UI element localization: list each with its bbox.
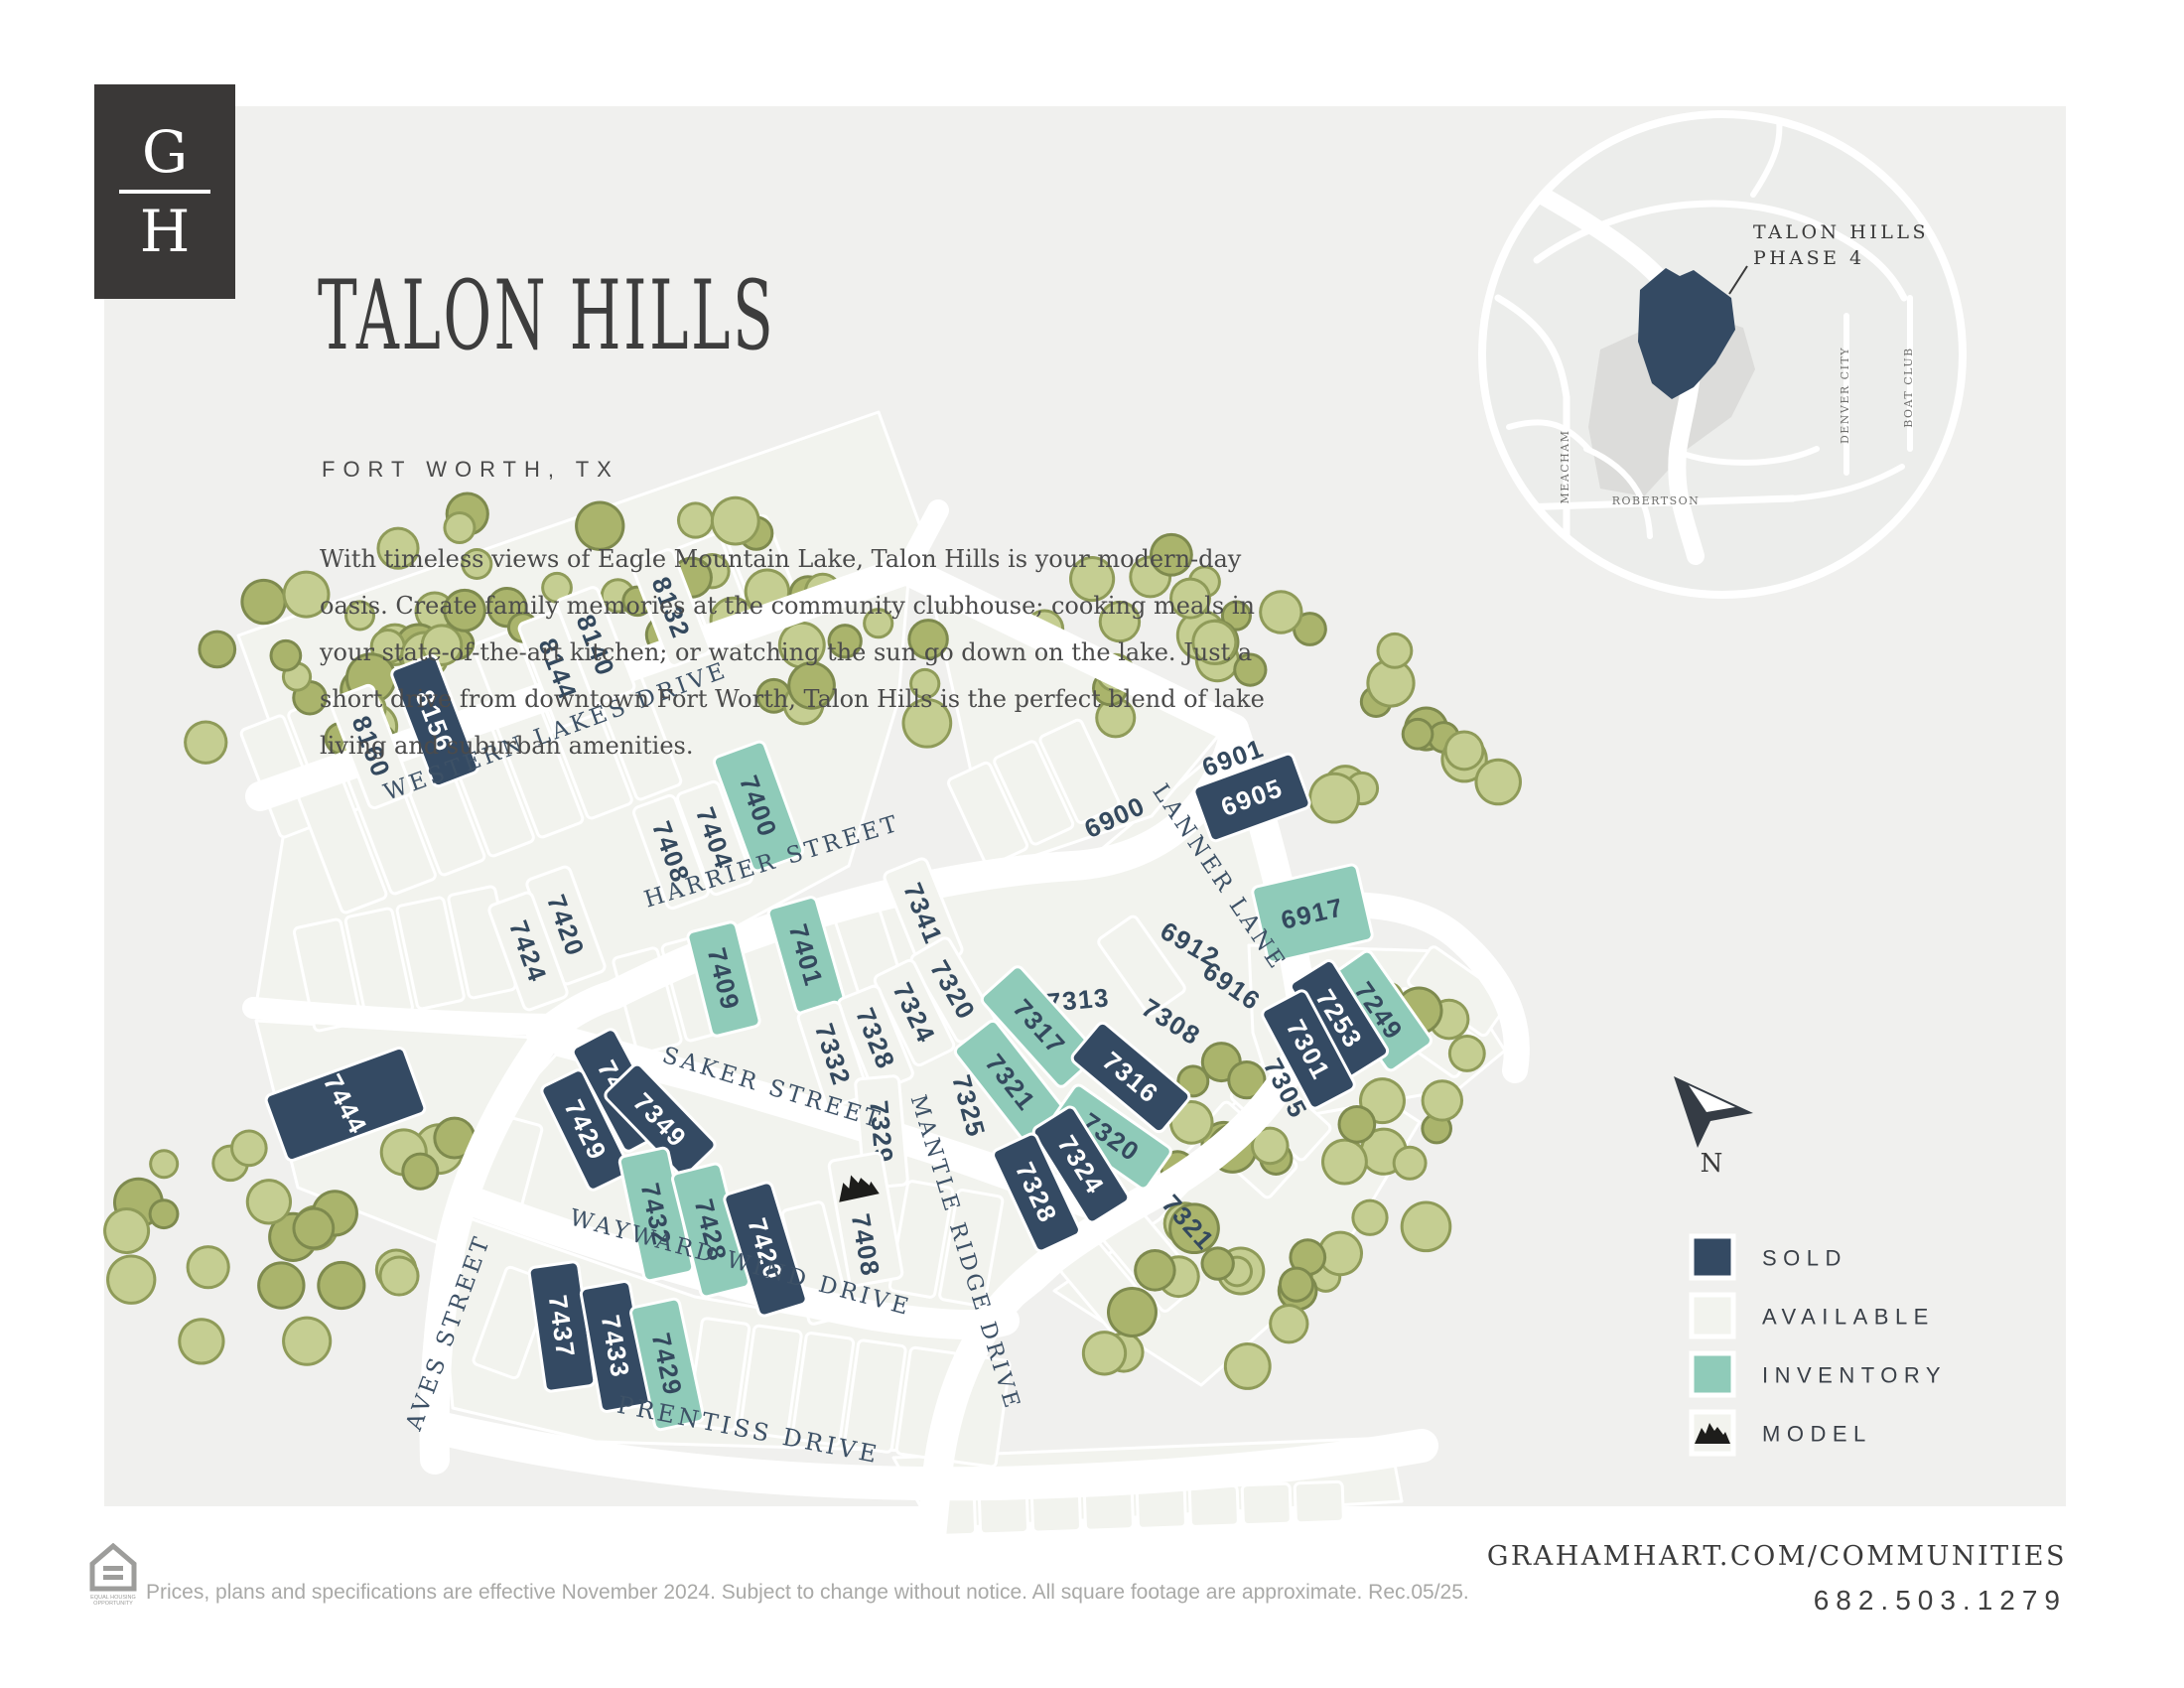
- tree-icon: [1082, 1331, 1127, 1375]
- equal-sign-bar: [103, 1575, 123, 1580]
- tree-icon: [1474, 759, 1522, 806]
- locator-street-label: DENVER CITY: [1839, 347, 1851, 444]
- phase-label: PHASE 4: [1753, 247, 1865, 269]
- legend-label: INVENTORY: [1762, 1363, 1947, 1388]
- tree-icon: [379, 1256, 420, 1297]
- tree-icon: [257, 1261, 305, 1309]
- logo-divider: [119, 190, 210, 194]
- tree-icon: [1134, 1249, 1176, 1292]
- tree-icon: [230, 1130, 268, 1168]
- tree-icon: [1201, 1246, 1235, 1280]
- tree-icon: [1422, 1079, 1463, 1121]
- legend-label: SOLD: [1762, 1246, 1847, 1271]
- north-arrow-icon: [1674, 1076, 1753, 1148]
- page-title: TALON HILLS: [318, 260, 775, 371]
- logo-letter-h: H: [140, 202, 191, 261]
- legend-swatch-inventory: [1692, 1353, 1733, 1395]
- tree-icon: [1107, 1287, 1158, 1337]
- community-description: With timeless views of Eagle Mountain La…: [320, 536, 1273, 770]
- legend-label: MODEL: [1762, 1422, 1872, 1447]
- locator-street-label: BOAT CLUB: [1902, 347, 1915, 427]
- legend-row-model: MODEL: [1692, 1412, 1872, 1454]
- locator-street-label: MEACHAM: [1559, 430, 1571, 504]
- legend-row-inventory: INVENTORY: [1692, 1353, 1947, 1395]
- tree-icon: [1308, 773, 1360, 824]
- page-subtitle: FORT WORTH, TX: [322, 457, 619, 483]
- legend-swatch-available: [1692, 1295, 1733, 1336]
- tree-icon: [1269, 1304, 1308, 1343]
- website-url: GRAHAMHART.COM/COMMUNITIES: [1487, 1541, 2067, 1572]
- equal-sign-bar: [103, 1566, 123, 1571]
- legend-row-sold: SOLD: [1692, 1236, 1847, 1278]
- tree-icon: [282, 1317, 332, 1366]
- tree-icon: [178, 1318, 224, 1364]
- lot-available: [1242, 1483, 1291, 1525]
- lot-available: [1295, 1481, 1343, 1523]
- site-map: 8160815681448140813274087404740074207424…: [0, 0, 2184, 1688]
- tree-icon: [103, 1207, 150, 1254]
- locator-map: TALON HILLSPHASE 4MEACHAMROBERTSONDENVER…: [1482, 114, 1963, 595]
- tree-icon: [1393, 1146, 1428, 1181]
- tree-icon: [246, 1179, 292, 1224]
- tree-icon: [292, 1207, 335, 1250]
- tree-icon: [1448, 1035, 1486, 1072]
- lot-available: [1189, 1485, 1238, 1527]
- graham-hart-logo: G H: [94, 84, 235, 299]
- tree-icon: [270, 639, 303, 672]
- north-arrow: N: [1674, 1076, 1753, 1179]
- tree-icon: [1351, 1199, 1388, 1236]
- tree-icon: [1376, 633, 1413, 669]
- tree-icon: [1444, 730, 1485, 771]
- equal-housing-icon: EQUAL HOUSING OPPORTUNITY: [89, 1543, 137, 1607]
- tree-icon: [317, 1261, 365, 1310]
- tree-icon: [240, 579, 286, 625]
- tree-icon: [401, 1153, 439, 1191]
- tree-icon: [1321, 1139, 1368, 1186]
- eho-text: OPPORTUNITY: [93, 1601, 133, 1607]
- legend-label: AVAILABLE: [1762, 1305, 1935, 1330]
- logo-letter-g: G: [142, 122, 188, 182]
- phone-number: 682.503.1279: [1814, 1585, 2067, 1617]
- tree-icon: [1402, 718, 1434, 751]
- tree-icon: [187, 1245, 230, 1289]
- flyer-page: 8160815681448140813274087404740074207424…: [0, 0, 2184, 1688]
- north-label: N: [1701, 1149, 1723, 1179]
- phase-label: TALON HILLS: [1753, 221, 1929, 243]
- legend-row-available: AVAILABLE: [1692, 1295, 1935, 1336]
- tree-icon: [1338, 1105, 1377, 1144]
- tree-icon: [1401, 1201, 1452, 1253]
- legend: SOLDAVAILABLEINVENTORYMODEL: [1692, 1236, 1947, 1454]
- tree-icon: [184, 721, 227, 765]
- tree-icon: [677, 501, 714, 538]
- footer-disclaimer: Prices, plans and specifications are eff…: [146, 1581, 1469, 1605]
- tree-icon: [1279, 1267, 1314, 1303]
- tree-icon: [149, 1198, 180, 1229]
- locator-street-label: ROBERTSON: [1612, 494, 1701, 507]
- legend-swatch-sold: [1692, 1236, 1733, 1278]
- tree-icon: [106, 1255, 156, 1305]
- tree-icon: [1224, 1342, 1272, 1390]
- tree-icon: [198, 631, 236, 669]
- tree-icon: [149, 1149, 179, 1179]
